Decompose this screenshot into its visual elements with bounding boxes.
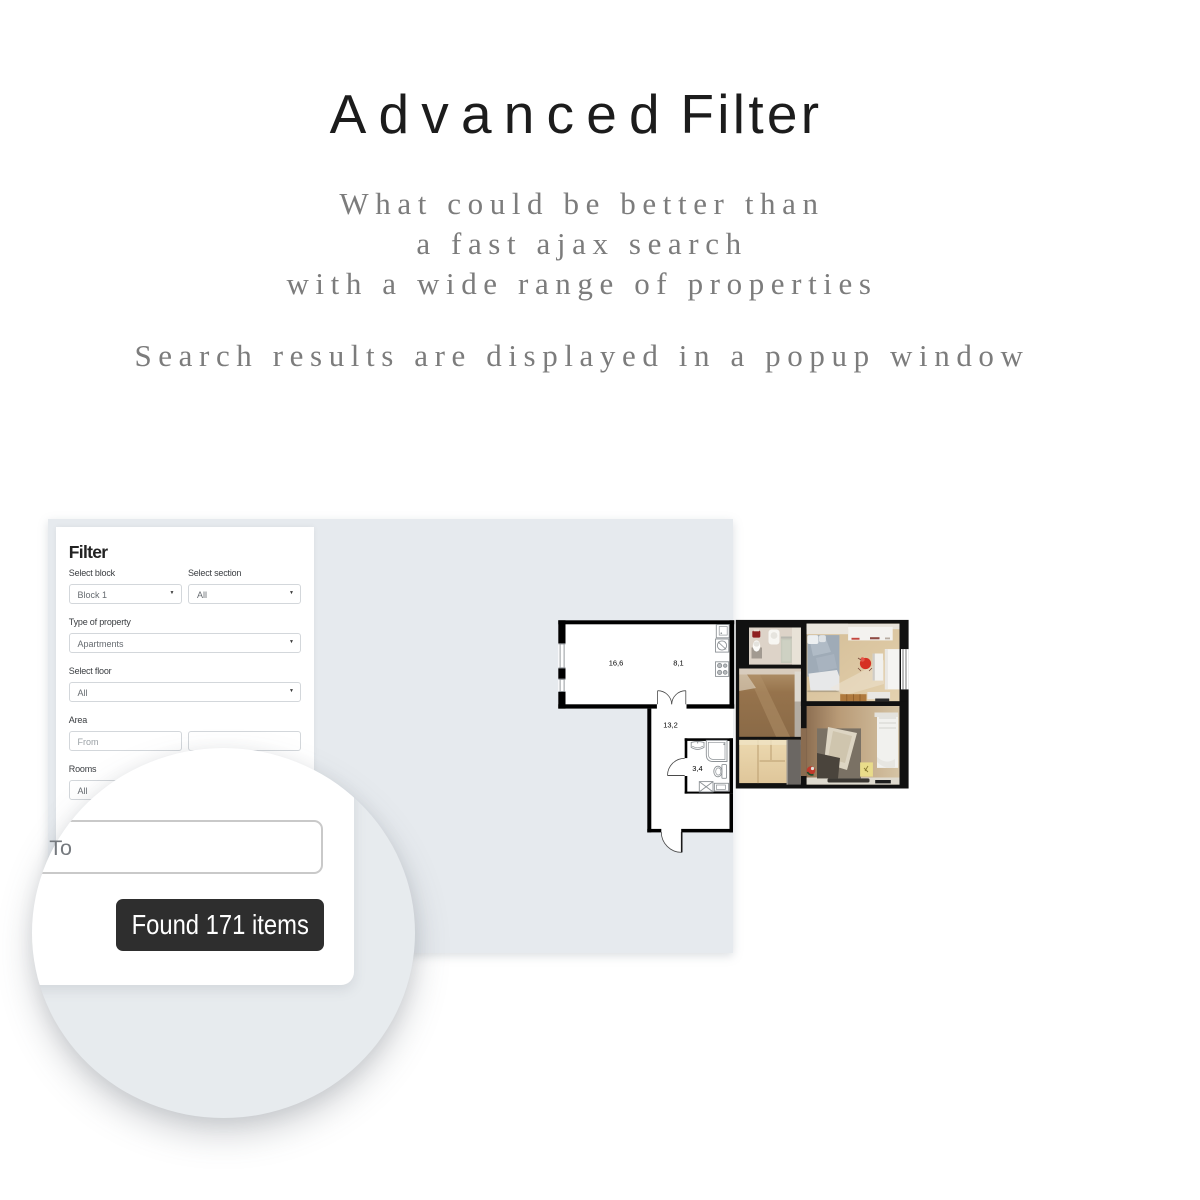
svg-text:8,1: 8,1 (673, 658, 683, 667)
svg-text:16,6: 16,6 (609, 658, 624, 667)
svg-text:13,2: 13,2 (663, 720, 678, 729)
svg-text:3,4: 3,4 (692, 764, 702, 773)
